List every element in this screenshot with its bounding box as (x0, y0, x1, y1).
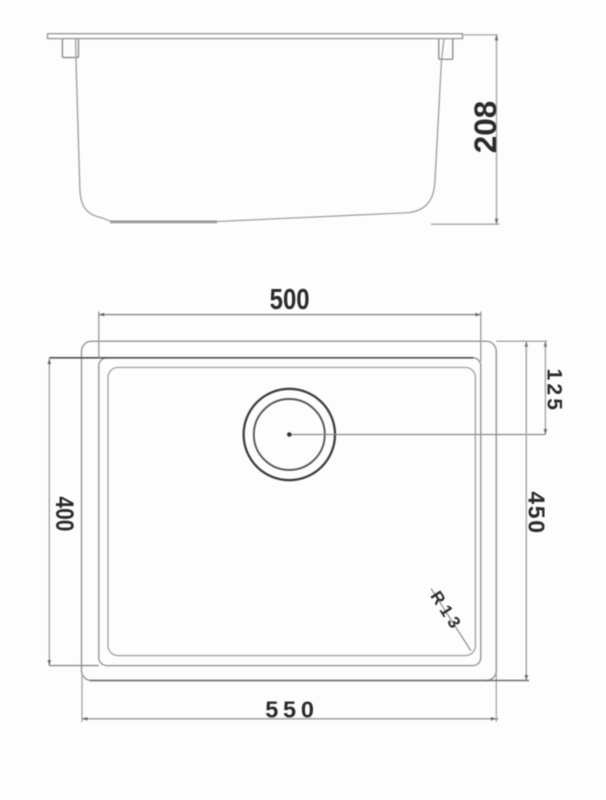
svg-text:500: 500 (270, 283, 310, 315)
svg-text:400: 400 (50, 496, 78, 531)
svg-text:208: 208 (467, 101, 503, 154)
svg-text:125: 125 (543, 368, 566, 413)
svg-text:450: 450 (523, 491, 549, 534)
svg-text:550: 550 (265, 697, 319, 723)
